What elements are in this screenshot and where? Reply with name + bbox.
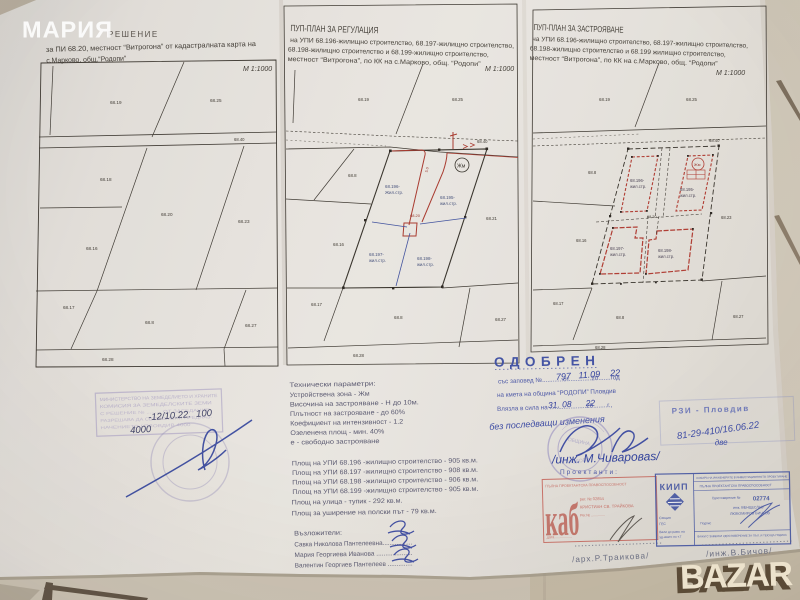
svg-text:МАРИЯ: МАРИЯ [22,17,113,43]
svg-text:BAZAR: BAZAR [679,555,793,597]
